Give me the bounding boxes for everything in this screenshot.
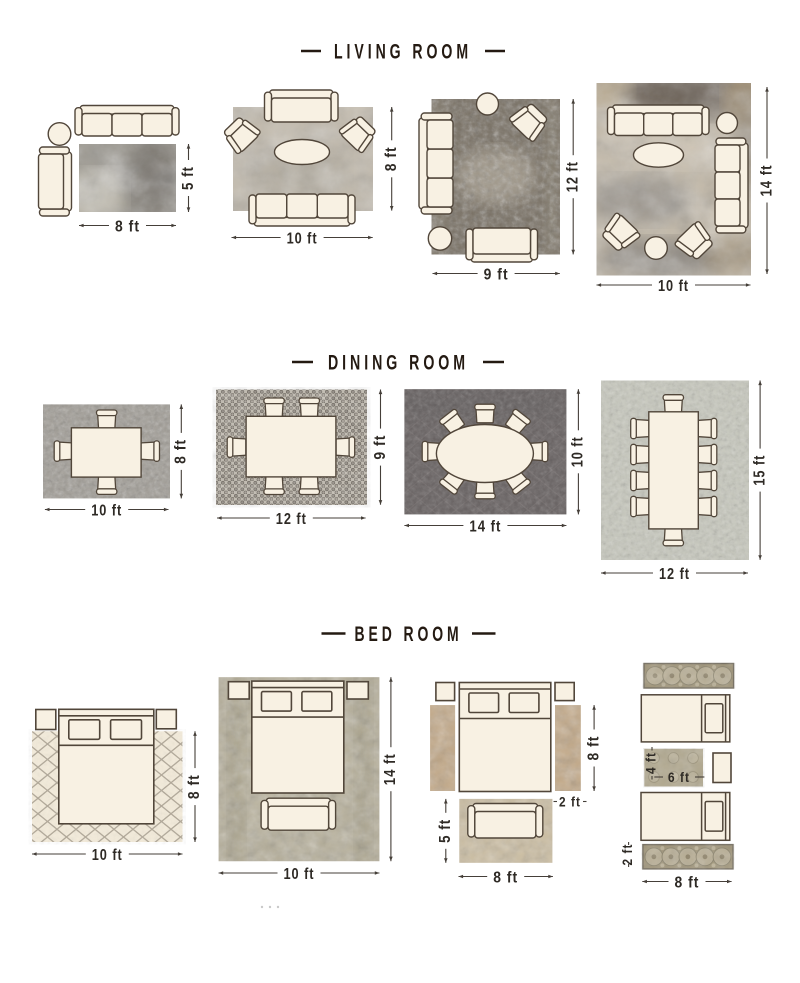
svg-text:LIVING ROOM: LIVING ROOM	[334, 40, 472, 64]
svg-text:8 ft: 8 ft	[115, 218, 140, 235]
svg-text:5 ft: 5 ft	[437, 819, 454, 843]
svg-text:15 ft: 15 ft	[751, 455, 768, 486]
svg-text:8 ft: 8 ft	[383, 146, 400, 171]
svg-text:10 ft: 10 ft	[91, 502, 122, 519]
svg-text:10 ft: 10 ft	[284, 866, 315, 883]
svg-text:14 ft: 14 ft	[469, 518, 501, 535]
svg-text:12 ft: 12 ft	[276, 511, 307, 528]
svg-text:2 ft: 2 ft	[620, 844, 635, 866]
svg-text:6 ft: 6 ft	[668, 770, 690, 785]
svg-text:10 ft: 10 ft	[658, 278, 689, 295]
svg-text:DINING ROOM: DINING ROOM	[328, 351, 469, 375]
svg-text:12 ft: 12 ft	[565, 161, 582, 192]
svg-text:8 ft: 8 ft	[493, 869, 518, 886]
svg-text:8 ft: 8 ft	[186, 774, 203, 799]
svg-text:BED ROOM: BED ROOM	[355, 622, 463, 646]
svg-text:10 ft: 10 ft	[287, 230, 318, 247]
svg-text:2 ft: 2 ft	[559, 794, 581, 809]
svg-text:10 ft: 10 ft	[92, 847, 123, 864]
svg-text:9 ft: 9 ft	[372, 435, 389, 460]
svg-text:14 ft: 14 ft	[382, 753, 399, 785]
svg-text:8 ft: 8 ft	[585, 736, 602, 761]
svg-text:9 ft: 9 ft	[484, 266, 509, 283]
svg-text:12 ft: 12 ft	[659, 566, 690, 583]
svg-text:14 ft: 14 ft	[758, 165, 775, 197]
svg-text:8 ft: 8 ft	[674, 874, 699, 891]
svg-text:8 ft: 8 ft	[173, 439, 190, 464]
svg-text:10 ft: 10 ft	[570, 436, 587, 467]
svg-text:5 ft: 5 ft	[180, 166, 197, 190]
svg-text:4 ft: 4 ft	[643, 752, 658, 774]
